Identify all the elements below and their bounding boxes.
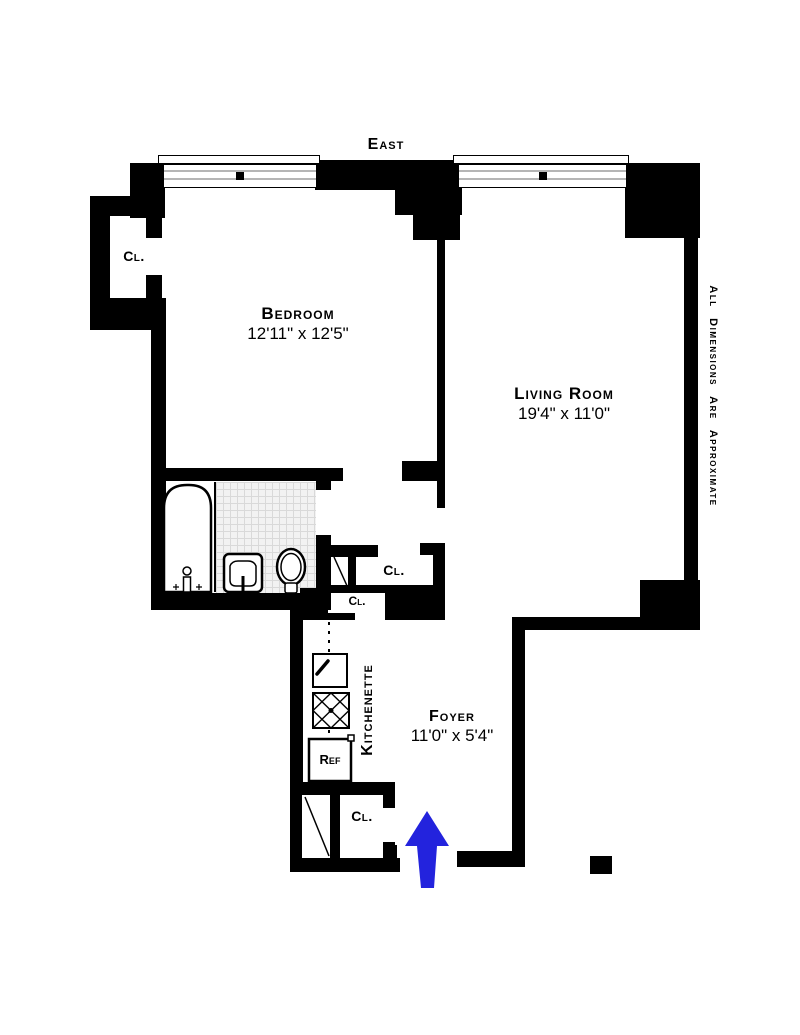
wall-segment — [315, 160, 460, 190]
living-room-name: Living Room — [464, 384, 664, 404]
wall-segment — [290, 782, 395, 795]
stove-icon — [313, 693, 349, 728]
wall-segment — [625, 163, 700, 238]
entry-arrow-icon — [405, 811, 449, 888]
wall-segment — [316, 545, 378, 557]
wall-segment — [146, 275, 162, 330]
orientation-label: East — [336, 136, 436, 154]
kitchen-closet-label: Cl. — [332, 594, 382, 608]
wall-segment — [433, 543, 445, 613]
wall-segment — [684, 238, 698, 588]
wall-segment — [348, 557, 356, 590]
bathroom-tile-floor — [216, 482, 316, 593]
foyer-dimensions: 11'0" x 5'4" — [382, 726, 522, 746]
wall-segment — [151, 468, 343, 481]
wall-segment — [290, 610, 303, 790]
wall-segment — [300, 588, 328, 620]
hall-closet-label: Cl. — [369, 562, 419, 578]
wall-segment — [146, 196, 162, 238]
wall-segment — [590, 856, 612, 874]
floor-plan: East — [0, 0, 800, 1035]
wall-segment — [383, 782, 395, 808]
bathroom-door-swing-icon — [334, 557, 348, 588]
bedroom-name: Bedroom — [198, 304, 398, 324]
window-mullion — [539, 172, 547, 180]
wall-segment — [402, 461, 445, 481]
wall-segment — [316, 468, 331, 490]
wall-segment — [395, 188, 462, 215]
wall-segment — [328, 585, 445, 593]
entry-closet-label: Cl. — [337, 808, 387, 824]
wall-segment — [328, 613, 355, 620]
foyer-name: Foyer — [382, 708, 522, 726]
wall-segment — [420, 543, 433, 555]
kitchenette-name: Kitchenette — [359, 610, 379, 810]
refrigerator-label: Ref — [309, 752, 351, 767]
wall-segment — [330, 795, 340, 862]
wall-segment — [457, 851, 525, 867]
wall-segment — [413, 215, 460, 240]
bedroom-closet-label: Cl. — [109, 248, 159, 264]
bedroom-dimensions: 12'11" x 12'5" — [198, 324, 398, 344]
living-room-dimensions: 19'4" x 11'0" — [464, 404, 664, 424]
dimensions-disclaimer: All Dimensions Are Approximate — [703, 266, 719, 526]
wall-segment — [512, 617, 700, 630]
entry-closet-door-swing-icon — [305, 797, 329, 856]
bathtub-icon — [164, 485, 211, 592]
kitchen-sink-icon — [313, 654, 347, 687]
wall-segment — [290, 858, 400, 872]
window-mullion — [236, 172, 244, 180]
